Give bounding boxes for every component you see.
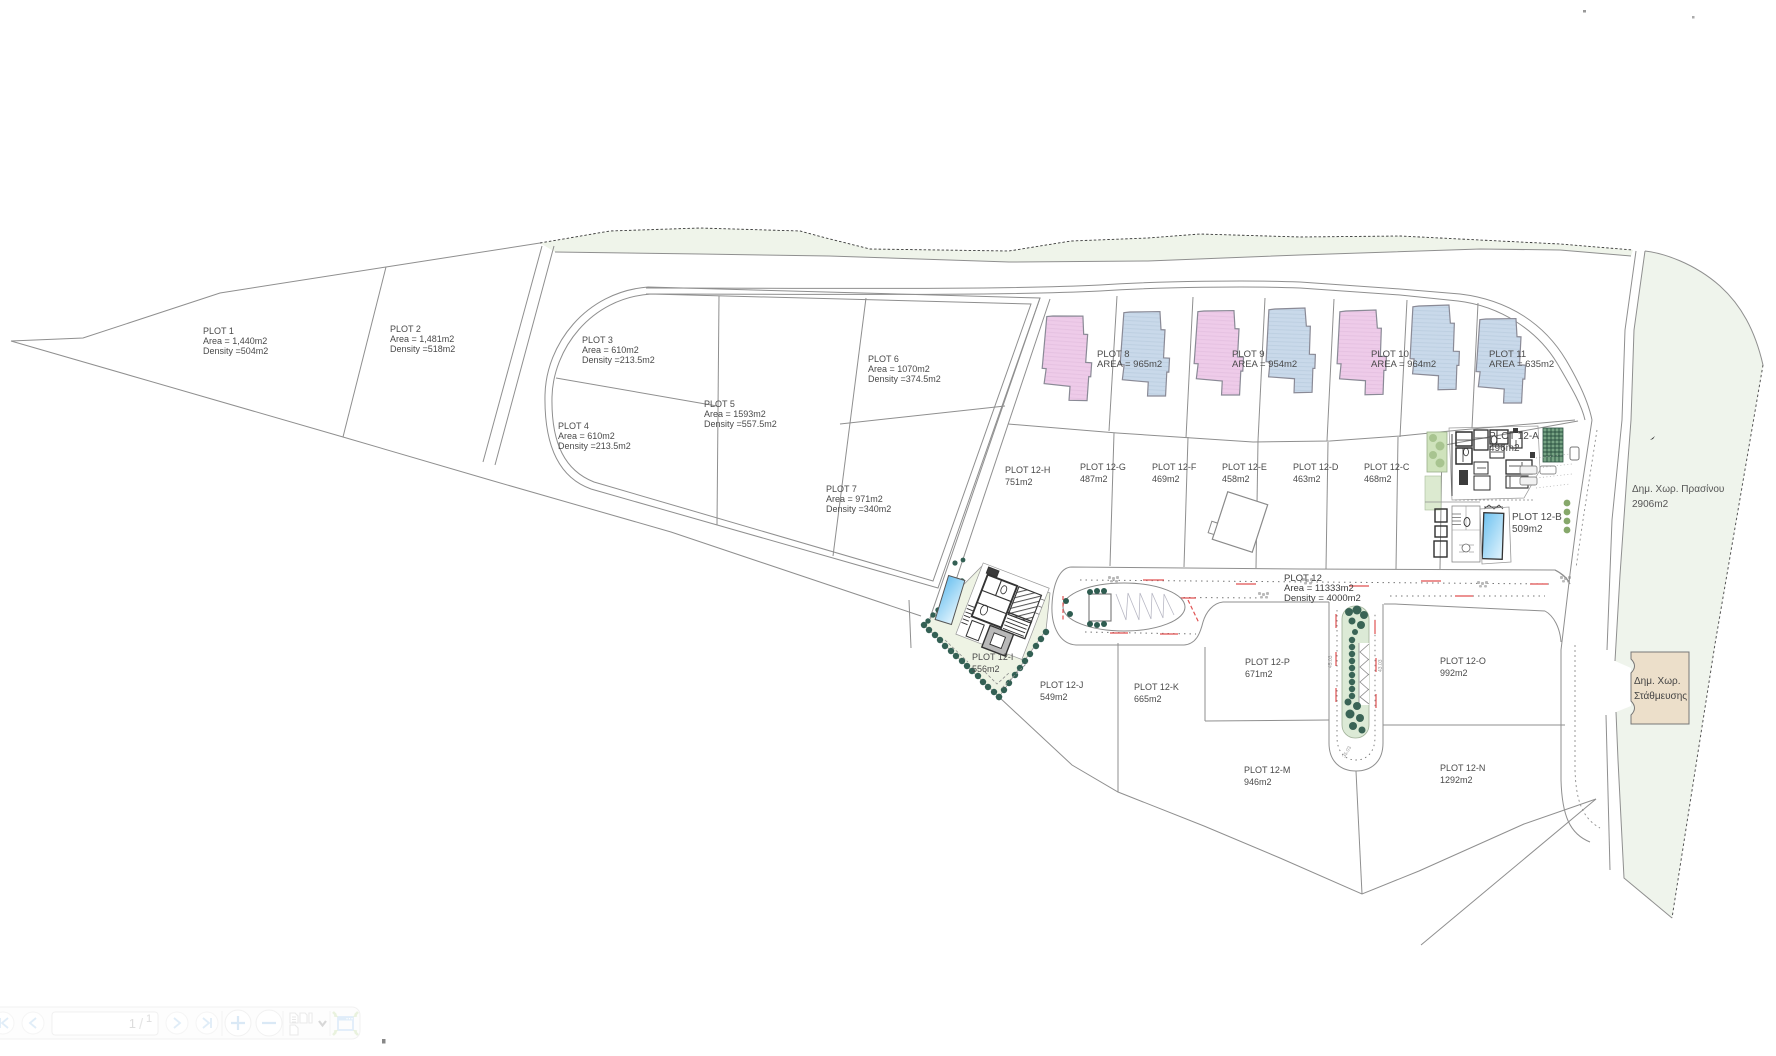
svg-text:Density =213.5m2: Density =213.5m2 [558,441,631,451]
svg-text:Density =518m2: Density =518m2 [390,344,455,354]
svg-text:Στάθμευσης: Στάθμευσης [1634,690,1687,702]
svg-text:45.03: 45.03 [1328,655,1334,668]
svg-text:PLOT 2: PLOT 2 [390,324,421,334]
svg-text:PLOT 12-J: PLOT 12-J [1040,680,1083,690]
svg-text:PLOT 12-N: PLOT 12-N [1440,763,1485,773]
svg-text:PLOT 12-D: PLOT 12-D [1293,462,1339,472]
svg-text:Density =374.5m2: Density =374.5m2 [868,374,941,384]
svg-text:Area = 1070m2: Area = 1070m2 [868,364,930,374]
svg-text:PLOT 12-E: PLOT 12-E [1222,462,1267,472]
svg-text:PLOT 4: PLOT 4 [558,421,589,431]
svg-text:549m2: 549m2 [1040,692,1068,702]
svg-text:Area = 1,481m2: Area = 1,481m2 [390,334,454,344]
svg-text:PLOT 12-G: PLOT 12-G [1080,462,1126,472]
svg-text:Density =340m2: Density =340m2 [826,504,891,514]
svg-text:751m2: 751m2 [1005,477,1033,487]
svg-text:PLOT 6: PLOT 6 [868,354,899,364]
svg-text:PLOT 12-C: PLOT 12-C [1364,462,1410,472]
svg-text:AREA = 965m2: AREA = 965m2 [1097,359,1162,370]
svg-text:Area = 1,440m2: Area = 1,440m2 [203,336,267,346]
svg-text:AREA = 635m2: AREA = 635m2 [1489,359,1554,370]
svg-text:PLOT 5: PLOT 5 [704,399,735,409]
svg-text:Density =557.5m2: Density =557.5m2 [704,419,777,429]
svg-text:PLOT 12-H: PLOT 12-H [1005,465,1050,475]
svg-text:Density = 4000m2: Density = 4000m2 [1284,593,1361,604]
svg-text:PLOT 12-F: PLOT 12-F [1152,462,1197,472]
svg-text:Area = 971m2: Area = 971m2 [826,494,883,504]
svg-text:Δημ. Χωρ.: Δημ. Χωρ. [1634,676,1681,687]
svg-text:Area = 610m2: Area = 610m2 [558,431,615,441]
svg-text:PLOT 7: PLOT 7 [826,484,857,494]
svg-text:PLOT 12-P: PLOT 12-P [1245,657,1290,667]
svg-text:43.03: 43.03 [1378,659,1384,672]
svg-text:1: 1 [146,1013,152,1025]
svg-text:PLOT 12-I: PLOT 12-I [972,652,1013,662]
svg-text:AREA = 954m2: AREA = 954m2 [1232,359,1297,370]
svg-text:PLOT 12-K: PLOT 12-K [1134,682,1179,692]
svg-text:458m2: 458m2 [1222,474,1250,484]
svg-text:665m2: 665m2 [1134,694,1162,704]
svg-text:PLOT 3: PLOT 3 [582,335,613,345]
svg-text:496m2: 496m2 [1489,443,1520,454]
svg-text:468m2: 468m2 [1364,474,1392,484]
svg-text:PLOT 12-A: PLOT 12-A [1489,431,1539,442]
svg-text:PLOT 12-O: PLOT 12-O [1440,656,1486,666]
svg-text:469m2: 469m2 [1152,474,1180,484]
svg-text:509m2: 509m2 [1512,524,1543,535]
svg-text:Density =213.5m2: Density =213.5m2 [582,355,655,365]
svg-text:946m2: 946m2 [1244,777,1272,787]
svg-text:463m2: 463m2 [1293,474,1321,484]
svg-text:PLOT 12-M: PLOT 12-M [1244,765,1290,775]
svg-text:556m2: 556m2 [972,664,1000,674]
svg-text:2906m2: 2906m2 [1632,499,1669,510]
svg-text:Density =504m2: Density =504m2 [203,346,268,356]
svg-text:AREA = 964m2: AREA = 964m2 [1371,359,1436,370]
svg-text:Area = 1593m2: Area = 1593m2 [704,409,766,419]
svg-text:992m2: 992m2 [1440,668,1468,678]
svg-text:671m2: 671m2 [1245,669,1273,679]
svg-text:Area = 610m2: Area = 610m2 [582,345,639,355]
svg-text:PLOT 12-B: PLOT 12-B [1512,512,1562,523]
svg-text:1: 1 [129,1016,136,1031]
svg-text:Δημ. Χωρ. Πρασίνου: Δημ. Χωρ. Πρασίνου [1632,483,1724,495]
svg-text:1292m2: 1292m2 [1440,775,1473,785]
svg-text:487m2: 487m2 [1080,474,1108,484]
svg-text:PLOT 1: PLOT 1 [203,326,234,336]
